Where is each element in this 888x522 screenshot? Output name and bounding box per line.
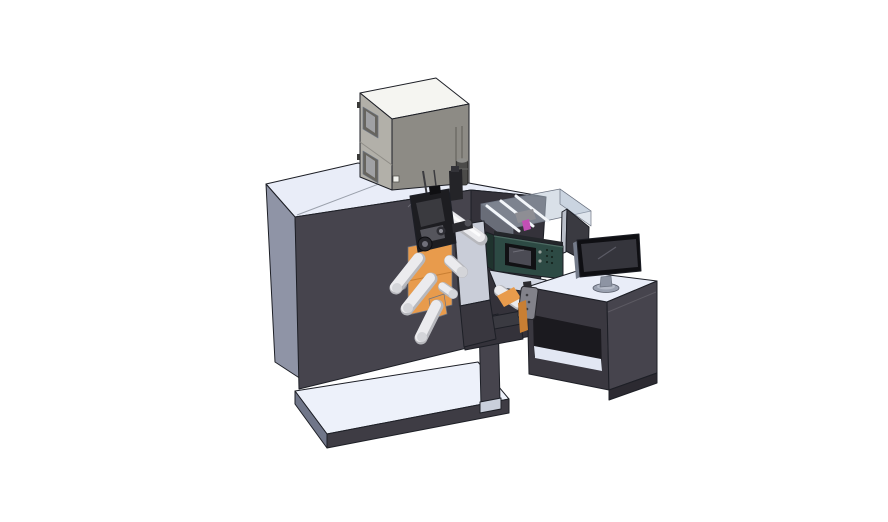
cad-scene <box>0 0 888 522</box>
mech-drive-gear-hub <box>422 241 428 247</box>
mech-bracket-cap <box>451 166 459 172</box>
dryer-hinge-upper <box>357 102 360 108</box>
pendant-button-1 <box>526 294 529 297</box>
machine-render <box>0 0 888 522</box>
dryer-hinge-lower <box>357 154 360 160</box>
divider-plate-lower <box>460 300 496 347</box>
monitor-screen <box>581 239 638 272</box>
pendant-button-2 <box>528 301 531 304</box>
control-desk <box>527 271 657 400</box>
mech-pinch-gear-hub <box>439 229 443 233</box>
hmi-bolt-upper <box>538 250 541 253</box>
hmi-bolt-lower <box>538 259 541 262</box>
dryer-label-plate <box>393 176 399 182</box>
mech-arm-pin <box>465 220 472 227</box>
canister-cap <box>457 158 468 162</box>
mech-top-bracket <box>449 169 463 201</box>
monitor-stand-neck <box>600 276 612 287</box>
